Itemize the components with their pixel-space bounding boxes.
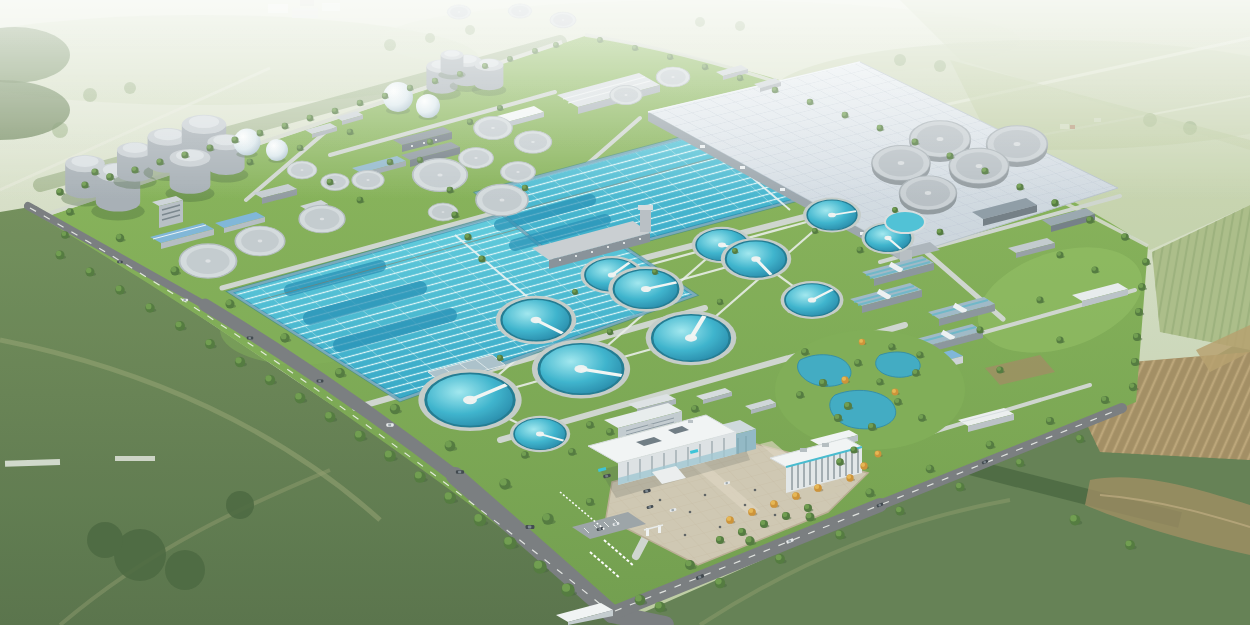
aerial-rendering: Wastewater Treatment Plant — Aerial Rend…	[0, 0, 1250, 625]
color-cast	[0, 0, 1250, 625]
rendering-canvas: Wastewater Treatment Plant — Aerial Rend…	[0, 0, 1250, 625]
